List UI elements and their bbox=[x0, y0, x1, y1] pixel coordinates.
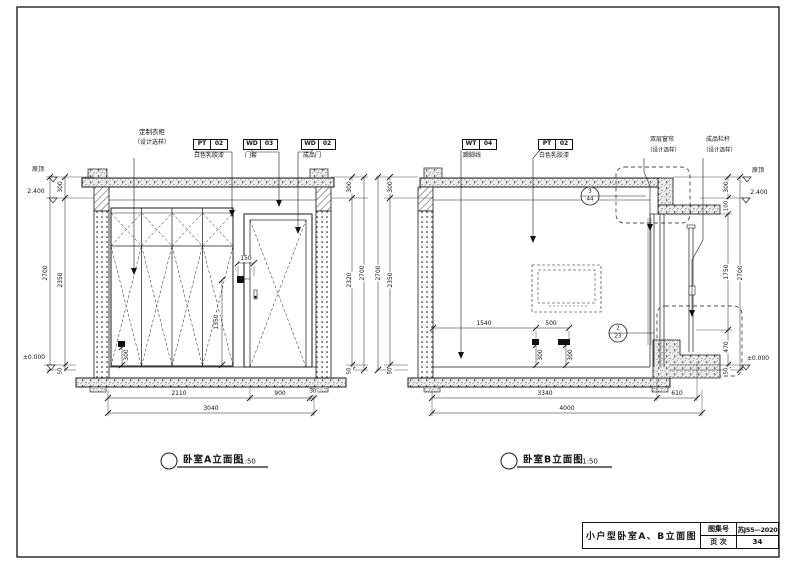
level-marker bbox=[742, 365, 750, 370]
tag-desc: 白色乳胶漆 bbox=[538, 153, 570, 159]
finish-tag-paint: PT02 bbox=[538, 139, 573, 150]
leader-arrow bbox=[530, 236, 536, 243]
atlas-number-value: 苏J55—2020 bbox=[737, 523, 778, 536]
railing-cap bbox=[687, 225, 695, 228]
level-original-ceiling: 原顶 bbox=[751, 168, 765, 174]
tag-code: WD bbox=[244, 140, 260, 149]
leader-arrow bbox=[689, 310, 695, 317]
elevation-a-scale: 1:50 bbox=[239, 459, 257, 466]
railing-label-note: （设计选样） bbox=[702, 148, 737, 154]
cad-linework bbox=[0, 0, 798, 565]
tag-number: 02 bbox=[318, 140, 335, 149]
finish-tag-paint: PT02 bbox=[193, 139, 228, 150]
detail-reference-circles bbox=[581, 187, 654, 342]
level-marker bbox=[47, 365, 55, 370]
dim: 1350 bbox=[214, 313, 220, 330]
dim: 300 bbox=[538, 348, 544, 361]
detail-ref-sheet: 23 bbox=[614, 334, 623, 340]
dim: 150 bbox=[239, 256, 252, 262]
level-marker bbox=[743, 177, 751, 182]
dim: 2700 bbox=[360, 264, 366, 281]
elevation-b-scale: 1:50 bbox=[581, 459, 599, 466]
dim: 2700 bbox=[43, 264, 49, 281]
tv-outline bbox=[532, 265, 601, 312]
wardrobe bbox=[111, 208, 233, 366]
detail-ref-sheet: 44 bbox=[586, 197, 595, 203]
dim: 1750 bbox=[724, 263, 730, 280]
tag-desc: 门套 bbox=[244, 153, 258, 159]
finish-tag-door-casing: WD03 bbox=[243, 139, 278, 150]
page-number-value: 34 bbox=[737, 536, 778, 548]
level-original-ceiling: 原顶 bbox=[31, 167, 45, 173]
tag-code: WT bbox=[463, 140, 479, 149]
dim: 2700 bbox=[376, 264, 382, 281]
tv-socket-symbol bbox=[558, 339, 570, 345]
tag-number: 03 bbox=[260, 140, 277, 149]
elevation-b-electrical bbox=[532, 339, 570, 345]
tag-desc: 踢脚线 bbox=[462, 153, 482, 159]
dim: 3340 bbox=[536, 391, 553, 397]
title-block: 小户型卧室A、B立面图 图集号 苏J55—2020 页 次 34 bbox=[582, 522, 779, 549]
dim: 300 bbox=[568, 348, 574, 361]
wardrobe-label: 定制衣柜 bbox=[138, 129, 166, 136]
wardrobe-label-note: （设计选样） bbox=[133, 140, 171, 146]
tag-number: 02 bbox=[555, 140, 572, 149]
dim: 900 bbox=[273, 391, 286, 397]
tag-number: 02 bbox=[210, 140, 227, 149]
dim: 2320 bbox=[347, 271, 353, 288]
curtain-box-detail-outline bbox=[616, 167, 690, 223]
page-number-label: 页 次 bbox=[701, 536, 737, 548]
level-ceiling: 2.400 bbox=[749, 190, 768, 196]
tag-desc: 白色乳胶漆 bbox=[193, 153, 225, 159]
finish-tag-skirting: WT04 bbox=[462, 139, 497, 150]
curtain-label: 双层窗帘 bbox=[649, 137, 675, 143]
socket-symbol bbox=[118, 341, 125, 347]
leader-arrow bbox=[458, 352, 464, 359]
atlas-number-label: 图集号 bbox=[701, 523, 737, 536]
dim: 50 bbox=[347, 367, 353, 376]
drawing-sheet: 定制衣柜 （设计选样） PT02 白色乳胶漆 WD03 门套 WD02 成品门 … bbox=[0, 0, 798, 565]
detail-ref-number: 2 bbox=[615, 326, 621, 332]
finish-tag-door: WD02 bbox=[301, 139, 336, 150]
elevation-b-caption: 卧室B立面图 bbox=[522, 455, 585, 465]
dim: 610 bbox=[670, 391, 683, 397]
door bbox=[244, 214, 312, 367]
dim: 100 bbox=[724, 200, 730, 213]
switch-symbol bbox=[237, 276, 244, 283]
dim: 300 bbox=[724, 180, 730, 193]
socket-symbol bbox=[532, 339, 539, 345]
railing-label: 成品栏杆 bbox=[705, 137, 731, 143]
detail-ref-number: 3 bbox=[587, 189, 593, 195]
dim: 500 bbox=[544, 321, 557, 327]
dim: 3040 bbox=[202, 406, 219, 412]
dim: 2350 bbox=[58, 271, 64, 288]
dim: 2110 bbox=[170, 391, 187, 397]
dim: 300 bbox=[347, 180, 353, 193]
dim: 50 bbox=[58, 367, 64, 376]
elevation-a-caption: 卧室A立面图 bbox=[182, 455, 245, 465]
level-marker bbox=[742, 198, 750, 203]
dim: 1540 bbox=[475, 321, 492, 327]
tag-number: 04 bbox=[479, 140, 496, 149]
dim: 50 bbox=[724, 367, 730, 376]
curtain-label-note: （设计选样） bbox=[646, 148, 681, 154]
tag-desc: 成品门 bbox=[302, 153, 322, 159]
dim: 2700 bbox=[738, 264, 744, 281]
level-floor: ±0.000 bbox=[746, 356, 770, 362]
dim: 2350 bbox=[388, 271, 394, 288]
level-ceiling: 2.400 bbox=[26, 189, 45, 195]
leader-arrow bbox=[276, 200, 282, 207]
drawing-title: 小户型卧室A、B立面图 bbox=[583, 523, 701, 548]
level-floor: ±0.000 bbox=[22, 355, 46, 361]
dim: 470 bbox=[724, 340, 730, 353]
dim: 30 bbox=[309, 389, 318, 395]
tag-code: WD bbox=[302, 140, 318, 149]
dim: 300 bbox=[124, 348, 130, 361]
tag-code: PT bbox=[539, 140, 555, 149]
tag-code: PT bbox=[194, 140, 210, 149]
dim: 4000 bbox=[558, 406, 575, 412]
dim: 300 bbox=[58, 180, 64, 193]
dim: 300 bbox=[388, 180, 394, 193]
dim: 50 bbox=[388, 367, 394, 376]
balcony-step bbox=[653, 340, 720, 378]
